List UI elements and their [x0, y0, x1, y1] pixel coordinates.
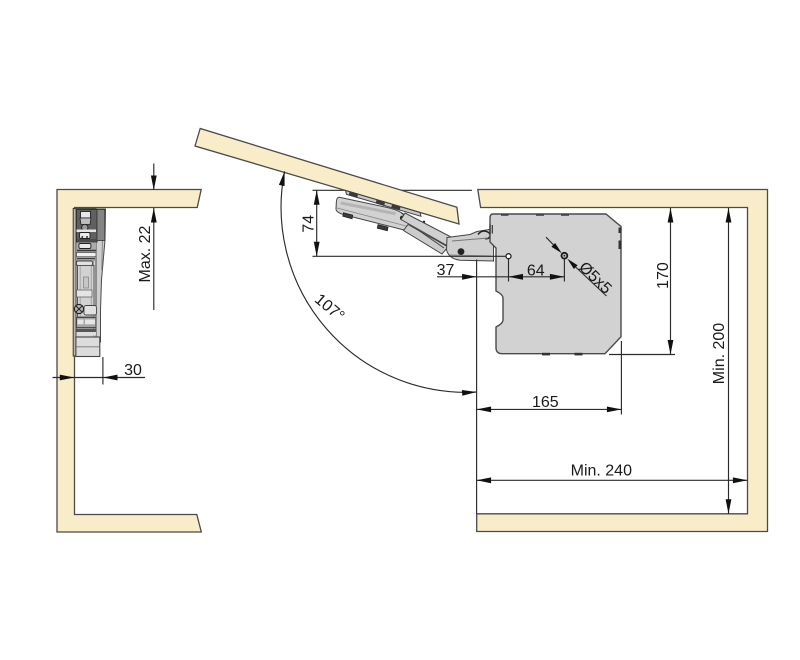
- svg-text:37: 37: [437, 262, 455, 279]
- svg-text:30: 30: [124, 362, 142, 379]
- svg-text:Max. 22: Max. 22: [137, 225, 154, 282]
- svg-text:64: 64: [527, 263, 545, 280]
- svg-text:Min. 240: Min. 240: [571, 463, 632, 480]
- svg-text:165: 165: [532, 394, 559, 411]
- svg-text:Min. 200: Min. 200: [711, 323, 728, 384]
- svg-text:170: 170: [655, 262, 672, 289]
- svg-text:74: 74: [300, 215, 317, 233]
